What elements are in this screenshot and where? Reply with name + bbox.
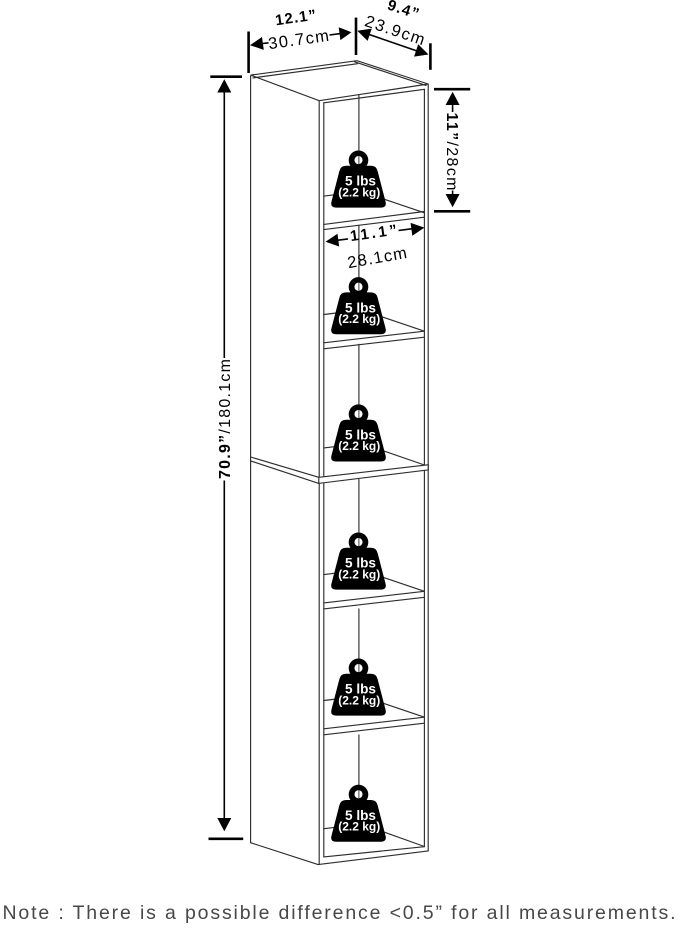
svg-text:11”/28cm: 11”/28cm bbox=[443, 113, 460, 191]
svg-text:Note : There is a possible dif: Note : There is a possible difference <0… bbox=[3, 902, 676, 924]
svg-text:70.9”/180.1cm: 70.9”/180.1cm bbox=[217, 359, 234, 479]
